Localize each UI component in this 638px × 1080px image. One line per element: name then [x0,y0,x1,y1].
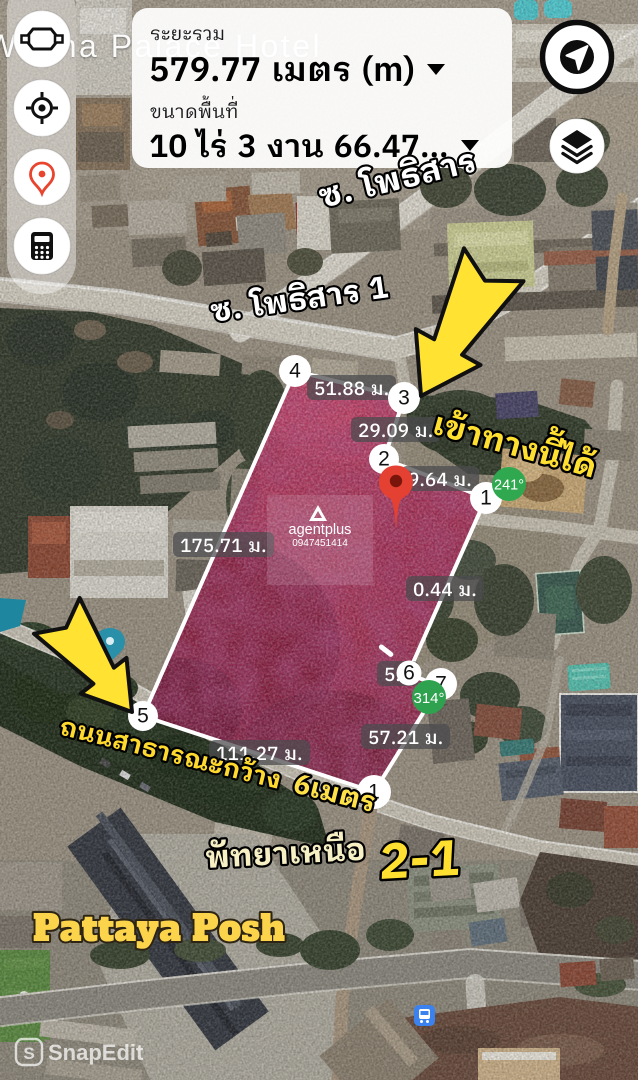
svg-text:314°: 314° [413,690,444,707]
svg-text:3: 3 [398,387,410,410]
svg-text:6: 6 [403,662,415,685]
svg-text:0947451414: 0947451414 [292,538,348,549]
svg-text:4: 4 [289,360,301,383]
svg-text:agentplus: agentplus [289,522,352,538]
svg-text:1: 1 [480,487,492,510]
svg-text:5: 5 [137,705,149,728]
svg-text:SnapEdit: SnapEdit [48,1040,144,1065]
svg-text:S: S [23,1044,34,1063]
svg-text:241°: 241° [494,478,524,494]
svg-text:2: 2 [378,448,390,471]
